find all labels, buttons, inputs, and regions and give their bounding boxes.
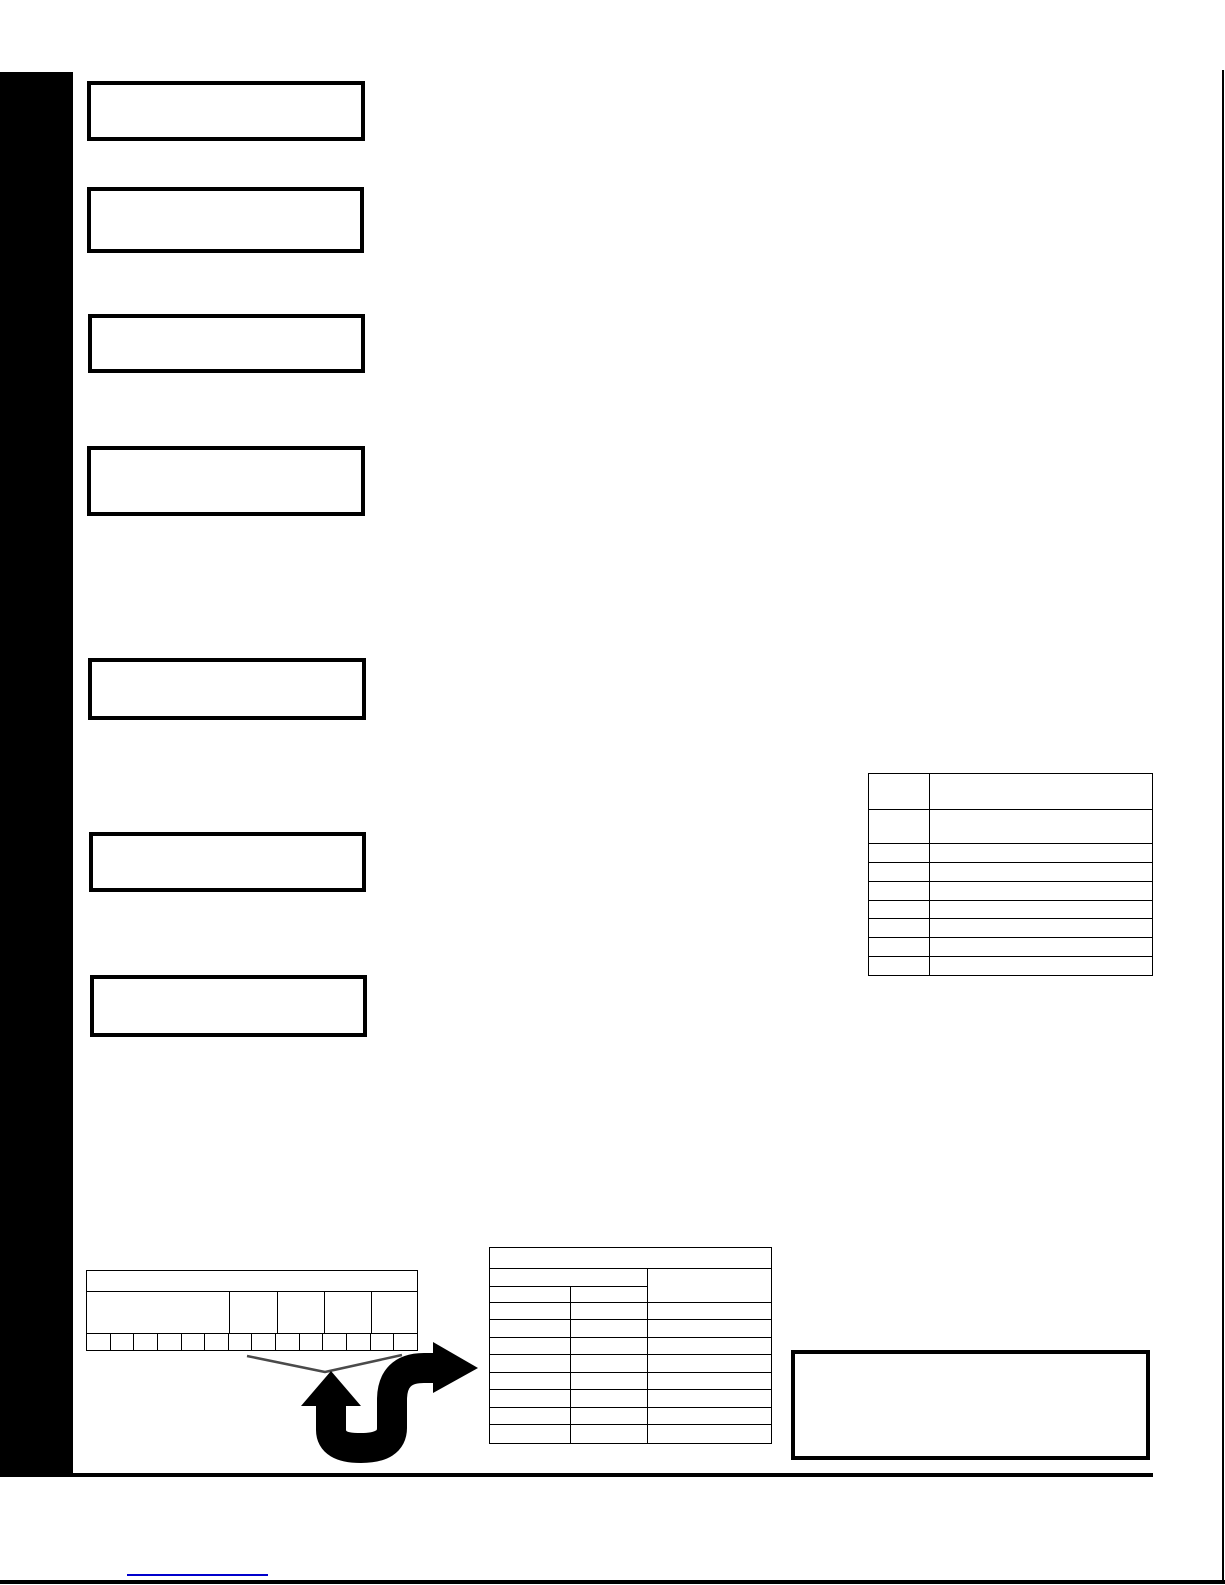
table-cell <box>929 956 1152 975</box>
table-cell <box>489 1337 570 1354</box>
table-cell <box>489 1268 647 1286</box>
table-cell <box>489 1247 771 1268</box>
table-cell <box>570 1424 647 1443</box>
table-cell <box>647 1337 771 1354</box>
table-cell <box>277 1291 324 1333</box>
table-cell <box>647 1389 771 1407</box>
footer-link-underline[interactable] <box>127 1566 268 1576</box>
pointer-table-data-grid <box>489 1302 771 1443</box>
table-cell <box>322 1333 346 1350</box>
table-cell <box>489 1354 570 1372</box>
table-cell <box>929 937 1152 956</box>
table-cell <box>868 918 929 937</box>
table-cell <box>868 862 929 881</box>
document-page <box>0 0 1225 1585</box>
pointer-table-header-band <box>489 1268 771 1302</box>
table-cell <box>929 918 1152 937</box>
table-cell <box>299 1333 323 1350</box>
footer-rule <box>66 1473 1153 1477</box>
right-edge-line <box>1222 70 1225 1583</box>
callout-box-5 <box>88 658 366 720</box>
table-cell <box>489 1302 570 1319</box>
edge-tab-bar <box>0 72 73 1477</box>
callout-box-6 <box>89 832 366 892</box>
spec-table <box>868 773 1153 976</box>
table-cell <box>251 1333 275 1350</box>
table-cell <box>570 1337 647 1354</box>
table-cell <box>204 1333 228 1350</box>
callout-box-2 <box>87 187 364 253</box>
pointer-table-subgroup-columns <box>489 1286 647 1302</box>
table-cell <box>86 1291 229 1333</box>
table-cell <box>868 900 929 919</box>
table-cell <box>570 1354 647 1372</box>
note-box <box>791 1350 1150 1460</box>
table-cell <box>570 1389 647 1407</box>
table-cell <box>929 809 1152 843</box>
table-cell <box>868 773 929 809</box>
table-cell <box>929 843 1152 862</box>
callout-box-7 <box>90 975 367 1037</box>
table-cell <box>929 773 1152 809</box>
table-cell <box>570 1302 647 1319</box>
table-cell <box>110 1333 134 1350</box>
table-cell <box>275 1333 299 1350</box>
table-cell <box>647 1268 771 1302</box>
strip-table <box>86 1270 418 1351</box>
table-cell <box>868 956 929 975</box>
bottom-edge-line <box>0 1580 1225 1584</box>
pointer-table-subgroup <box>489 1268 647 1302</box>
pointer-table <box>489 1247 772 1444</box>
brace-pointer-icon <box>247 1355 402 1372</box>
table-cell <box>647 1302 771 1319</box>
table-cell <box>393 1333 417 1350</box>
table-cell <box>371 1291 417 1333</box>
table-cell <box>489 1319 570 1337</box>
callout-box-4 <box>87 446 365 516</box>
strip-table-header-row <box>86 1270 417 1291</box>
callout-box-3 <box>88 314 365 373</box>
table-cell <box>370 1333 394 1350</box>
table-cell <box>489 1424 570 1443</box>
table-cell <box>868 809 929 843</box>
table-cell <box>346 1333 370 1350</box>
pointer-table-result-header <box>647 1268 771 1302</box>
table-cell <box>489 1389 570 1407</box>
table-cell <box>228 1333 252 1350</box>
table-cell <box>868 881 929 900</box>
table-cell <box>570 1407 647 1424</box>
table-cell <box>570 1319 647 1337</box>
table-cell <box>157 1333 181 1350</box>
table-cell <box>489 1407 570 1424</box>
table-cell <box>133 1333 157 1350</box>
table-cell <box>868 843 929 862</box>
table-cell <box>647 1407 771 1424</box>
table-cell <box>868 937 929 956</box>
table-cell <box>929 900 1152 919</box>
table-cell <box>489 1286 570 1302</box>
table-cell <box>324 1291 371 1333</box>
s-curve-arrow-icon <box>301 1342 478 1448</box>
table-cell <box>86 1270 417 1291</box>
table-cell <box>647 1424 771 1443</box>
table-cell <box>929 862 1152 881</box>
strip-table-group-row <box>86 1291 417 1333</box>
table-cell <box>570 1372 647 1389</box>
table-cell <box>647 1372 771 1389</box>
table-cell <box>229 1291 277 1333</box>
table-cell <box>86 1333 110 1350</box>
table-cell <box>570 1286 647 1302</box>
table-cell <box>489 1372 570 1389</box>
table-cell <box>929 881 1152 900</box>
table-cell <box>647 1319 771 1337</box>
pointer-table-title-row <box>489 1247 771 1268</box>
table-cell <box>181 1333 205 1350</box>
table-cell <box>647 1354 771 1372</box>
strip-table-unit-row <box>86 1333 417 1350</box>
callout-box-1 <box>87 81 365 141</box>
